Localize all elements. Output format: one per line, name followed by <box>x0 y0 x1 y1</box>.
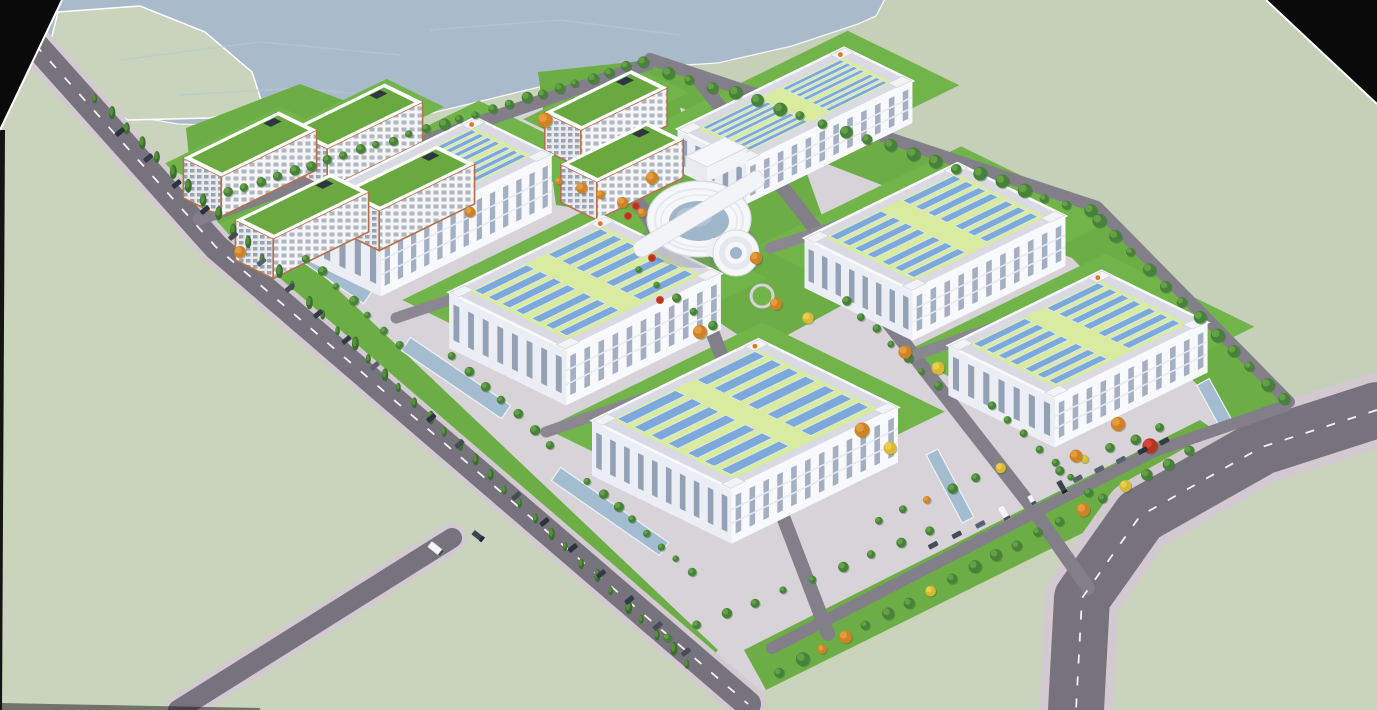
window-strip <box>543 166 548 209</box>
conifer-highlight <box>109 107 113 115</box>
tree-highlight <box>647 173 654 180</box>
window-strip <box>385 243 390 286</box>
tree-highlight <box>1093 215 1101 223</box>
tree-highlight <box>638 57 644 63</box>
tree-highlight <box>924 497 928 501</box>
conifer-highlight <box>639 615 642 621</box>
window-strip <box>584 346 590 388</box>
window-strip <box>805 458 811 499</box>
tree-highlight <box>858 314 862 318</box>
window-strip <box>610 439 616 477</box>
tree-highlight <box>658 544 662 548</box>
logo-mark <box>753 344 758 349</box>
tree-highlight <box>974 168 982 176</box>
tree-highlight <box>694 326 702 334</box>
window-strip <box>791 465 797 506</box>
tree-highlight <box>926 587 932 593</box>
window-strip <box>527 340 533 379</box>
tree-highlight <box>664 634 669 639</box>
tree-highlight <box>589 74 595 80</box>
tree-highlight <box>323 156 328 161</box>
window-strip <box>453 304 459 343</box>
tree-highlight <box>1262 379 1269 386</box>
conifer-highlight <box>563 543 566 549</box>
conifer-highlight <box>412 398 415 405</box>
conifer-highlight <box>396 383 399 389</box>
tree-highlight <box>1164 459 1170 465</box>
tree-highlight <box>1055 518 1060 523</box>
roundabout <box>751 285 773 307</box>
tree-highlight <box>818 120 823 125</box>
tree-highlight <box>555 84 561 90</box>
tree-highlight <box>1156 424 1161 429</box>
tree-highlight <box>423 125 428 130</box>
window-strip <box>863 275 868 310</box>
window-strip <box>1114 373 1120 411</box>
tree-highlight <box>752 95 759 102</box>
window-strip <box>847 438 853 479</box>
tree-highlight <box>930 156 937 163</box>
tree-highlight <box>797 653 805 661</box>
window-strip <box>819 452 825 493</box>
tree-highlight <box>991 550 998 557</box>
window-strip <box>529 172 534 215</box>
window-strip <box>1059 400 1065 438</box>
conifer-highlight <box>93 95 96 101</box>
tree-highlight <box>605 69 611 75</box>
tree-highlight <box>584 478 588 482</box>
tree-highlight <box>803 313 809 319</box>
tree-highlight <box>841 127 848 134</box>
tree-highlight <box>1127 248 1132 253</box>
tree-highlight <box>539 114 547 122</box>
window-strip <box>613 332 619 374</box>
window-strip <box>822 256 827 291</box>
window-strip <box>972 266 978 304</box>
tree-highlight <box>1161 282 1167 288</box>
tree-highlight <box>373 141 377 145</box>
tree-highlight <box>448 353 452 357</box>
window-strip <box>1073 393 1079 431</box>
tree-highlight <box>932 362 939 369</box>
tree-highlight <box>708 83 714 89</box>
tree-highlight <box>780 587 784 591</box>
window-strip <box>477 198 482 241</box>
cylinder-skylight <box>730 247 742 259</box>
conifer-highlight <box>306 297 310 306</box>
tree-highlight <box>1085 205 1092 212</box>
conifer-highlight <box>139 137 143 145</box>
window-strip <box>931 287 937 325</box>
tree-highlight <box>396 342 400 346</box>
red-flower-bed <box>633 203 640 210</box>
tree-highlight <box>636 267 640 271</box>
window-strip <box>792 144 798 176</box>
conifer-highlight <box>685 660 688 666</box>
window-strip <box>1029 394 1035 429</box>
window-strip <box>541 347 547 386</box>
window-strip <box>777 472 783 513</box>
window-strip <box>1056 226 1062 264</box>
tree-highlight <box>1068 474 1072 478</box>
window-strip <box>680 473 686 511</box>
window-strip <box>1028 239 1034 277</box>
window-strip <box>983 371 989 406</box>
tree-highlight <box>796 112 801 117</box>
window-strip <box>1014 246 1020 284</box>
tree-highlight <box>1020 430 1024 434</box>
window-strip <box>889 96 895 128</box>
window-strip <box>497 326 503 365</box>
window-strip <box>764 157 770 189</box>
tree-highlight <box>1099 494 1104 499</box>
tree-highlight <box>948 574 954 580</box>
tree-highlight <box>904 599 910 605</box>
tree-highlight <box>839 563 845 569</box>
tree-highlight <box>618 198 624 204</box>
tree-highlight <box>1185 446 1191 452</box>
tree-highlight <box>996 464 1002 470</box>
tree-highlight <box>897 538 903 544</box>
tree-highlight <box>1052 459 1056 463</box>
window-strip <box>370 244 376 284</box>
tree-highlight <box>302 256 306 260</box>
conifer-highlight <box>488 470 492 477</box>
red-flower-bed <box>657 297 664 304</box>
window-strip <box>468 312 474 351</box>
window-strip <box>1184 339 1190 377</box>
tree-highlight <box>1245 362 1250 367</box>
window-strip <box>596 433 602 471</box>
tree-highlight <box>809 576 813 580</box>
window-strip <box>556 355 562 394</box>
window-strip <box>1198 332 1204 370</box>
window-strip <box>875 103 881 135</box>
tree-highlight <box>318 267 323 272</box>
window-strip <box>503 185 508 228</box>
conifer-highlight <box>549 529 553 537</box>
tree-highlight <box>1212 330 1220 338</box>
window-strip <box>1142 359 1148 397</box>
campus-aerial-rendering <box>0 0 1377 710</box>
tree-highlight <box>908 148 916 156</box>
tree-highlight <box>997 175 1005 183</box>
tree-highlight <box>1040 195 1045 200</box>
tree-highlight <box>489 105 494 110</box>
window-strip <box>836 262 841 297</box>
tree-highlight <box>663 68 670 75</box>
window-strip <box>437 217 442 260</box>
tree-highlight <box>885 140 892 147</box>
window-strip <box>944 280 950 318</box>
tree-highlight <box>1144 440 1152 448</box>
window-strip <box>750 486 756 527</box>
conifer-highlight <box>216 207 220 216</box>
tree-highlight <box>751 253 758 260</box>
window-strip <box>1000 253 1006 291</box>
tree-highlight <box>340 152 345 157</box>
tree-highlight <box>629 516 633 520</box>
tree-highlight <box>1177 298 1183 304</box>
tree-highlight <box>988 402 993 407</box>
window-strip <box>355 236 361 276</box>
window-strip <box>694 480 700 518</box>
tree-highlight <box>1195 312 1202 319</box>
tree-highlight <box>472 112 476 116</box>
tree-highlight <box>654 282 658 286</box>
tree-highlight <box>840 631 847 638</box>
tree-highlight <box>774 104 782 112</box>
window-strip <box>1101 380 1107 418</box>
window-strip <box>986 260 992 298</box>
tree-highlight <box>1012 541 1018 547</box>
conifer-highlight <box>518 499 521 505</box>
window-strip <box>666 467 672 505</box>
window-strip <box>876 282 881 317</box>
window-strip <box>708 487 714 525</box>
window-strip <box>1087 387 1093 425</box>
window-strip <box>1042 232 1048 270</box>
tree-highlight <box>577 183 583 189</box>
conifer-highlight <box>185 180 189 189</box>
tree-highlight <box>522 93 528 99</box>
tree-highlight <box>514 410 519 415</box>
tree-highlight <box>888 341 892 345</box>
conifer-highlight <box>200 194 204 202</box>
tree-highlight <box>1004 417 1008 421</box>
tree-highlight <box>969 561 976 568</box>
conifer-highlight <box>442 427 445 433</box>
tree-highlight <box>1120 481 1126 487</box>
conifer-highlight <box>276 265 280 274</box>
tree-highlight <box>1036 446 1040 450</box>
roundabout-garden <box>751 285 773 307</box>
tree-highlight <box>873 325 878 330</box>
window-strip <box>1128 366 1134 404</box>
tree-highlight <box>918 369 922 373</box>
conifer-highlight <box>154 152 158 160</box>
tree-highlight <box>257 178 262 183</box>
tree-highlight <box>531 426 537 432</box>
conifer-highlight <box>502 486 505 492</box>
window-strip <box>516 178 521 221</box>
conifer-highlight <box>170 166 175 175</box>
tree-highlight <box>539 90 544 95</box>
window-strip <box>763 479 769 520</box>
window-strip <box>819 130 825 162</box>
window-strip <box>874 424 880 465</box>
window-strip <box>512 333 518 372</box>
conifer-highlight <box>655 631 658 638</box>
tree-highlight <box>224 188 229 193</box>
tree-highlight <box>546 442 551 447</box>
tree-highlight <box>1112 418 1120 426</box>
window-strip <box>711 284 717 326</box>
tree-highlight <box>1071 451 1078 458</box>
tree-highlight <box>465 207 471 213</box>
tree-highlight <box>1085 489 1090 494</box>
window-strip <box>806 137 812 169</box>
logo-mark <box>1095 275 1100 280</box>
window-strip <box>411 230 416 273</box>
red-flower-bed <box>649 255 656 262</box>
window-strip <box>833 445 839 486</box>
rendering-viewport <box>0 0 1377 710</box>
window-strip <box>450 211 455 254</box>
tree-highlight <box>876 517 880 521</box>
tree-highlight <box>1106 444 1111 449</box>
tree-highlight <box>505 100 510 105</box>
window-strip <box>641 319 647 361</box>
window-strip <box>627 326 633 368</box>
tree-highlight <box>240 184 245 189</box>
conifer-highlight <box>579 559 582 566</box>
tree-highlight <box>771 299 778 306</box>
window-strip <box>722 494 728 532</box>
tree-highlight <box>751 599 756 604</box>
tree-highlight <box>948 484 954 490</box>
tree-highlight <box>688 568 693 573</box>
tree-highlight <box>952 165 958 171</box>
window-strip <box>953 357 959 392</box>
window-strip <box>903 295 908 330</box>
tree-highlight <box>1077 504 1084 511</box>
tree-highlight <box>556 178 560 182</box>
conifer-highlight <box>533 514 536 521</box>
tree-highlight <box>290 166 296 172</box>
tree-highlight <box>615 503 621 509</box>
tree-highlight <box>333 284 337 288</box>
tree-highlight <box>482 383 487 388</box>
tree-highlight <box>934 382 939 387</box>
tree-highlight <box>972 474 977 479</box>
tree-highlight <box>673 294 678 299</box>
window-strip <box>570 353 576 395</box>
window-strip <box>736 492 742 533</box>
tree-highlight <box>1279 394 1285 400</box>
conifer-highlight <box>245 237 249 245</box>
window-strip <box>998 379 1004 414</box>
tree-highlight <box>406 131 410 135</box>
window-strip <box>624 446 630 484</box>
tree-highlight <box>861 621 866 626</box>
window-strip <box>778 150 784 182</box>
window-strip <box>958 273 964 311</box>
tree-highlight <box>673 556 677 560</box>
window-strip <box>1044 401 1050 436</box>
tree-highlight <box>1131 435 1137 441</box>
window-strip <box>968 364 974 399</box>
tree-highlight <box>571 80 575 84</box>
tree-highlight <box>1019 185 1027 193</box>
tree-highlight <box>709 321 714 326</box>
window-strip <box>490 191 495 234</box>
tree-highlight <box>644 530 648 534</box>
window-strip <box>638 453 644 491</box>
window-strip <box>1156 353 1162 391</box>
tree-highlight <box>693 621 698 626</box>
tree-highlight <box>638 209 643 214</box>
red-flower-bed <box>625 213 632 220</box>
tree-highlight <box>622 62 628 68</box>
tree-highlight <box>600 490 605 495</box>
tree-highlight <box>274 172 279 177</box>
tree-highlight <box>730 87 738 95</box>
window-strip <box>424 223 429 266</box>
tree-highlight <box>357 145 362 150</box>
tree-highlight <box>1034 528 1039 533</box>
tree-highlight <box>1110 231 1117 238</box>
conifer-highlight <box>473 454 477 462</box>
window-strip <box>669 305 675 347</box>
tree-highlight <box>818 645 823 650</box>
conifer-highlight <box>671 643 675 652</box>
conifer-highlight <box>609 587 612 593</box>
window-strip <box>598 339 604 381</box>
logo-mark <box>838 52 843 57</box>
conifer-highlight <box>382 369 386 377</box>
tree-highlight <box>899 346 906 353</box>
tree-highlight <box>1056 467 1061 472</box>
tree-highlight <box>690 308 694 312</box>
tree-highlight <box>685 76 690 81</box>
tree-highlight <box>867 551 872 556</box>
tree-highlight <box>365 312 369 316</box>
tree-highlight <box>307 162 313 168</box>
tree-highlight <box>885 443 892 450</box>
tree-highlight <box>926 527 931 532</box>
window-strip <box>809 249 814 284</box>
conifer-highlight <box>352 337 356 346</box>
tree-highlight <box>381 327 385 331</box>
tree-highlight <box>1144 264 1151 271</box>
tree-highlight <box>465 367 470 372</box>
tree-highlight <box>1063 201 1068 206</box>
conifer-highlight <box>335 327 338 333</box>
window-strip <box>652 460 658 498</box>
window-strip <box>890 289 895 324</box>
tree-highlight <box>390 137 395 142</box>
tree-highlight <box>235 247 242 254</box>
tree-highlight <box>1142 470 1148 476</box>
window-strip <box>655 312 661 354</box>
window-strip <box>917 294 923 332</box>
tree-highlight <box>883 608 890 615</box>
window-strip <box>1170 346 1176 384</box>
tree-highlight <box>1228 346 1235 353</box>
logo-mark <box>598 221 603 226</box>
conifer-highlight <box>230 224 234 232</box>
window-strip <box>398 236 403 279</box>
tree-highlight <box>900 506 904 510</box>
tree-highlight <box>843 297 848 302</box>
tree-highlight <box>722 609 728 615</box>
tree-highlight <box>597 191 602 196</box>
tree-highlight <box>350 297 355 302</box>
conifer-highlight <box>366 355 369 361</box>
tree-highlight <box>440 119 446 125</box>
window-strip <box>683 298 689 340</box>
tree-highlight <box>863 135 869 141</box>
tree-highlight <box>497 396 502 401</box>
tree-highlight <box>455 116 459 120</box>
logo-mark <box>469 122 474 127</box>
window-strip <box>903 89 909 121</box>
tree-highlight <box>856 424 864 432</box>
window-strip <box>1014 386 1020 421</box>
window-strip <box>483 319 489 358</box>
window-strip <box>833 123 839 155</box>
